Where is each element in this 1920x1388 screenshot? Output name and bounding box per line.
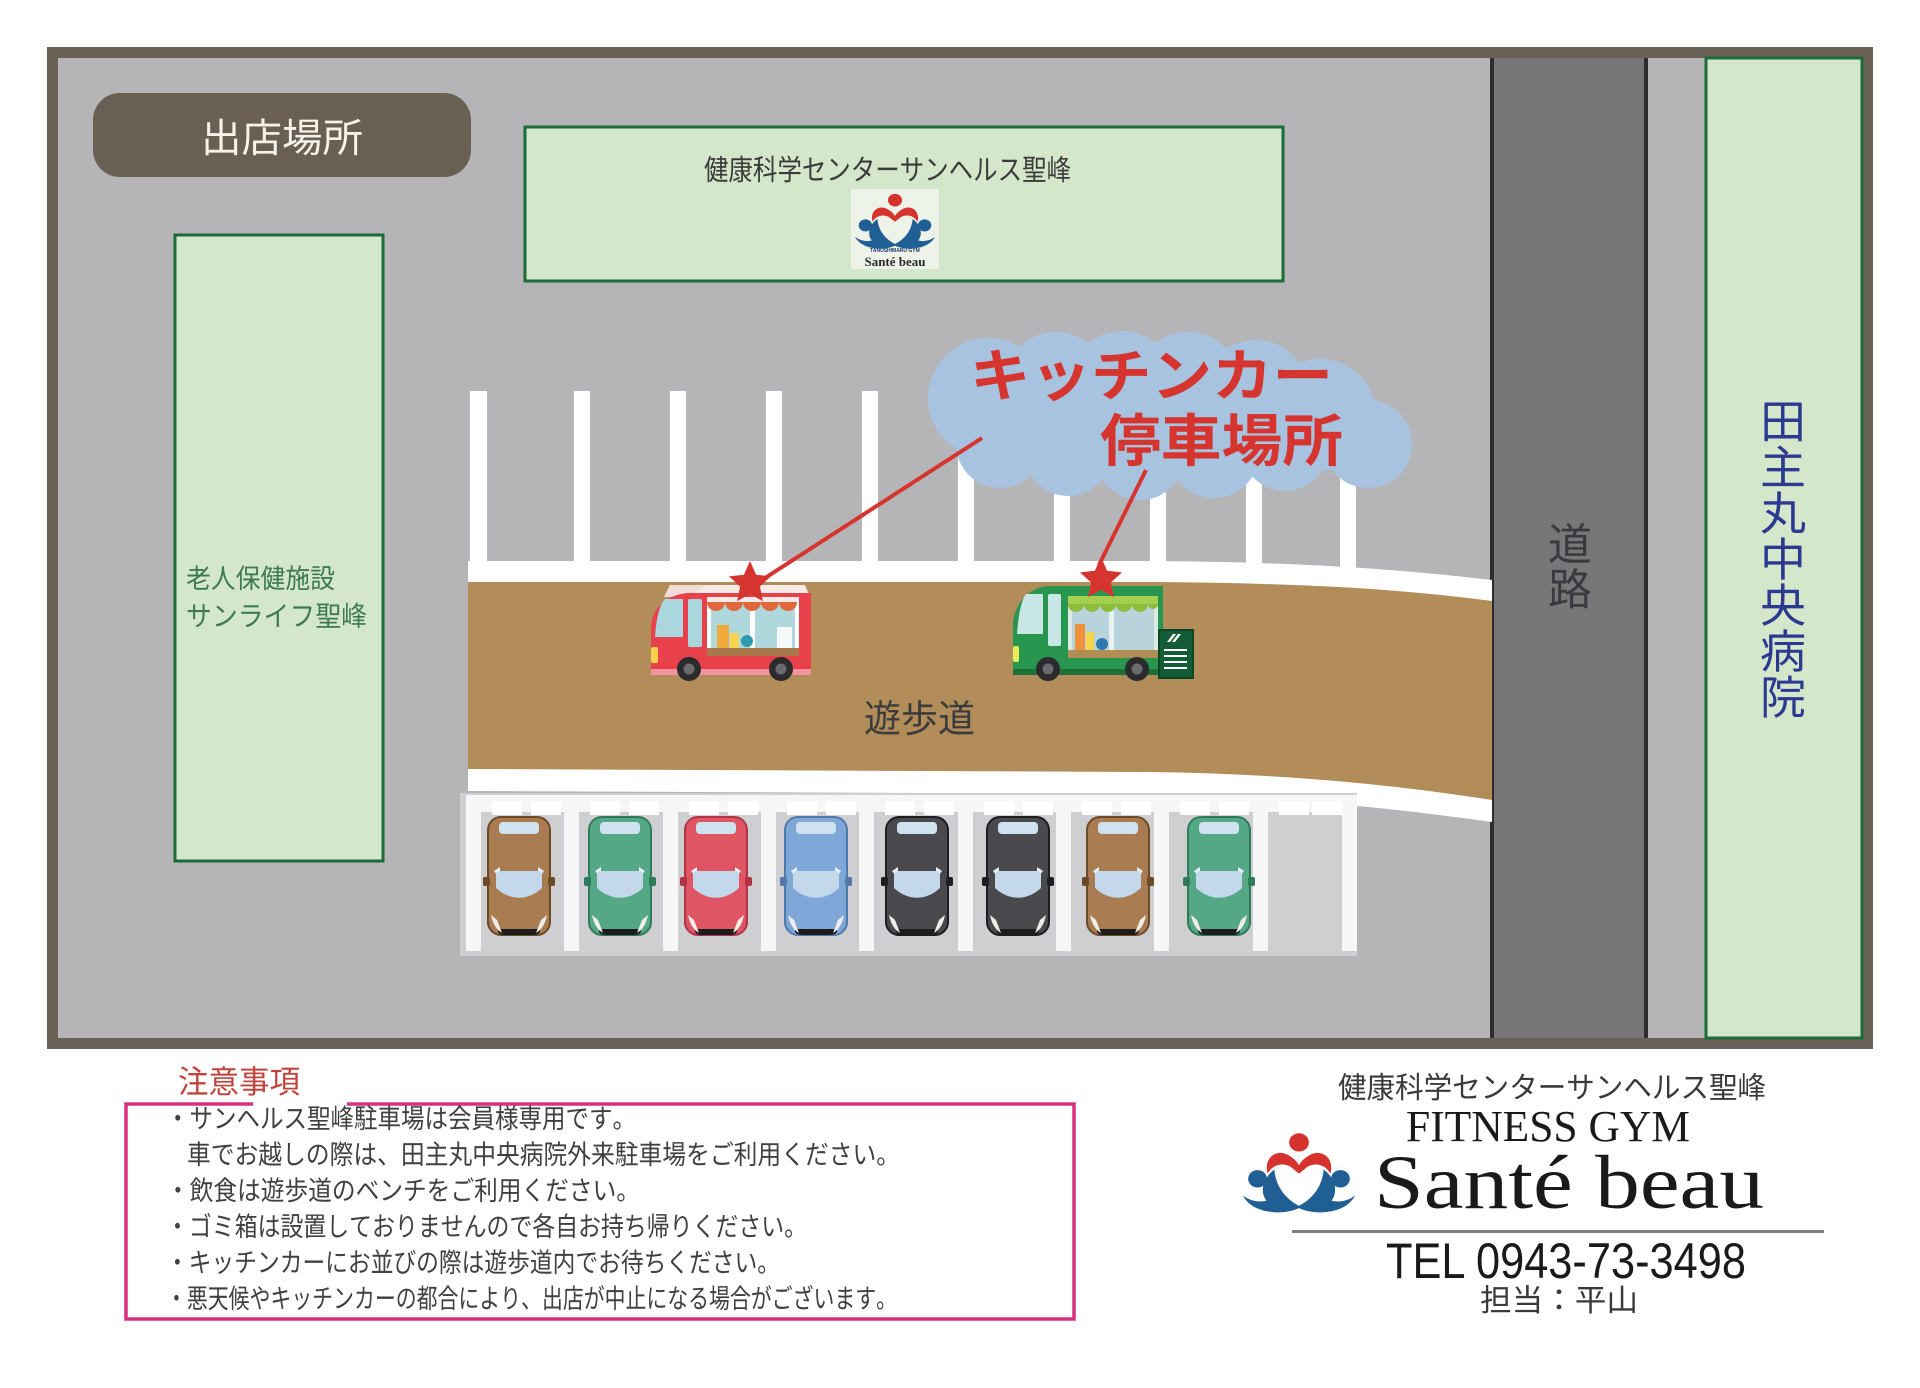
svg-text:Santé beau: Santé beau — [864, 254, 925, 269]
svg-text:TEL 0943-73-3498: TEL 0943-73-3498 — [1386, 1233, 1746, 1289]
svg-text:Santé beau: Santé beau — [1374, 1141, 1764, 1225]
